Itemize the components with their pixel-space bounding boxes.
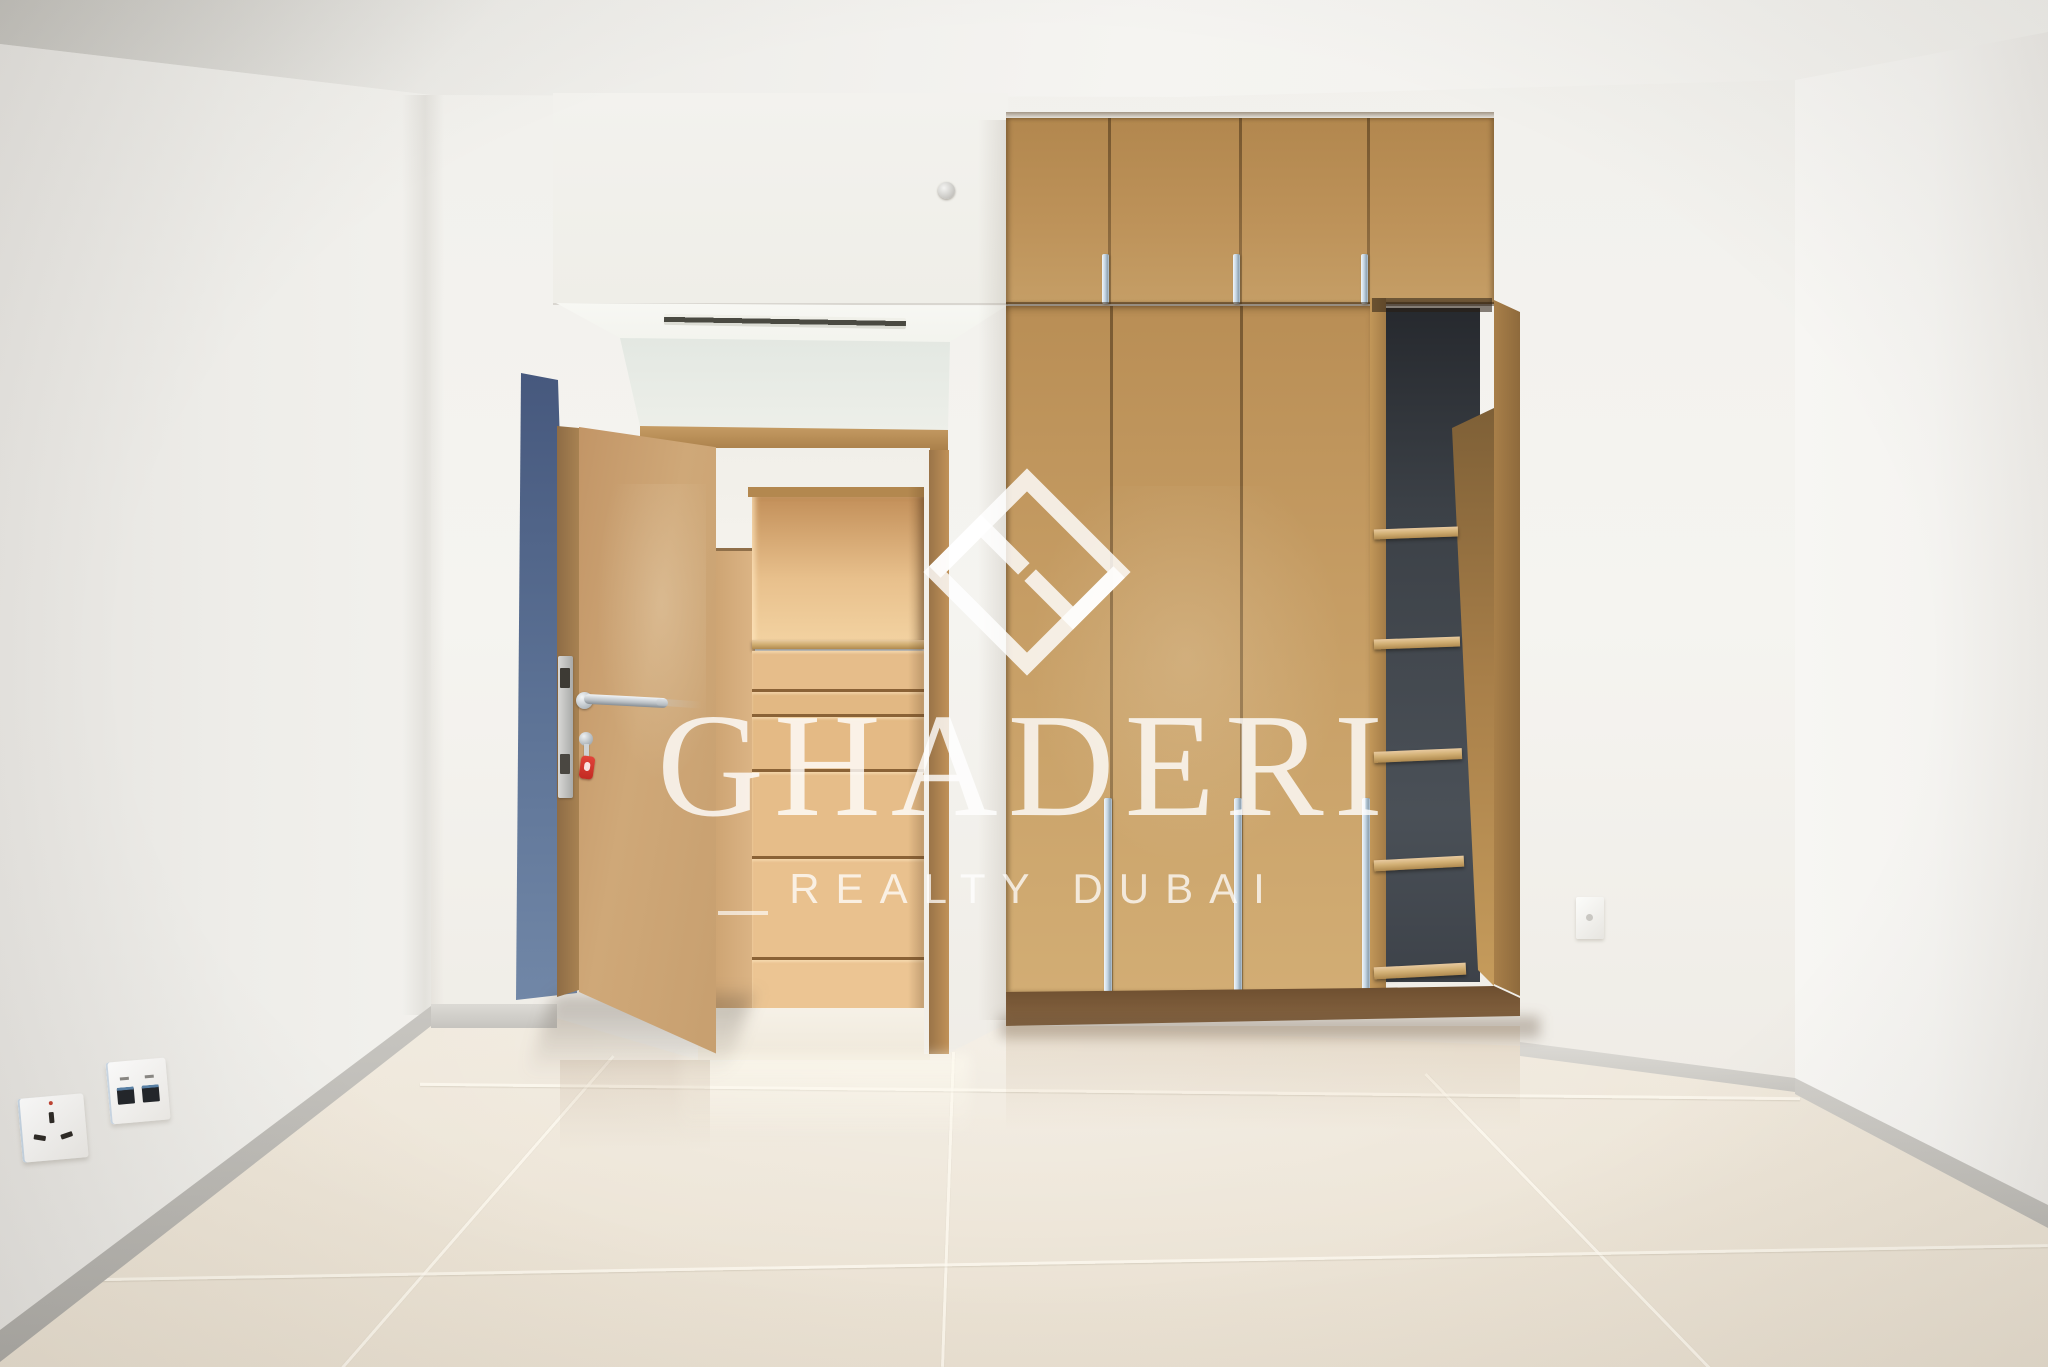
sprinkler-head [938,182,955,199]
wardrobe-upper-cabinets [1006,118,1494,304]
door-floor-reflection [560,1060,710,1150]
power-outlet-uk [17,1093,88,1163]
socket-indicator [49,1101,53,1105]
closet-drawer [752,859,924,960]
skirting-back-left [431,1004,557,1028]
door-sheen [596,484,706,784]
upper-door-handle [1102,254,1109,304]
wall-socket-right [1576,897,1604,939]
closet-shelf [752,640,924,649]
bedroom-door [556,424,716,1064]
closet-small-drawer [752,692,924,717]
socket-live-pin [33,1134,46,1141]
hallway [698,448,930,1060]
tall-door-handle [1104,798,1112,992]
socket-earth-pin [49,1112,55,1123]
media-port [142,1084,160,1102]
closet-drawer [752,772,924,859]
media-port [117,1086,135,1104]
door-frame-jamb [924,450,949,1054]
closet-open-shelf [752,497,924,646]
door-deadbolt [560,754,570,774]
shelf-unit-top-shadow [1372,298,1492,312]
closet-small-drawer [752,651,924,692]
recess-back-wall [620,338,950,430]
media-port-label [120,1077,129,1081]
upper-door-handle [1233,254,1240,304]
tall-door-handle [1362,798,1370,992]
upper-door-handle [1361,254,1368,304]
door-latch [560,668,570,688]
open-shelf-unit [1370,298,1494,992]
wardrobe-tall-doors [1006,306,1370,992]
socket-neutral-pin [60,1131,73,1140]
tall-door-handle [1234,798,1242,992]
wardrobe-right-side-panel [1494,298,1520,998]
room-corner-shade [402,95,444,1015]
closet-drawer [752,717,924,772]
wardrobe [1006,110,1546,1060]
door-sheen [1026,486,1346,866]
bulkhead-face [553,93,1008,305]
hallway-closet [748,487,930,1087]
socket-aperture [1586,914,1593,921]
key-tag-hole [584,762,591,772]
wardrobe-floor-reflection [1006,1026,1520,1130]
closet-top-frame [748,487,928,497]
media-outlet [105,1058,170,1125]
media-port-label [145,1075,154,1079]
wardrobe-wall-shadow [978,120,1006,1020]
bedroom-photo: GHADERI REALTY DUBAI [0,0,2048,1367]
